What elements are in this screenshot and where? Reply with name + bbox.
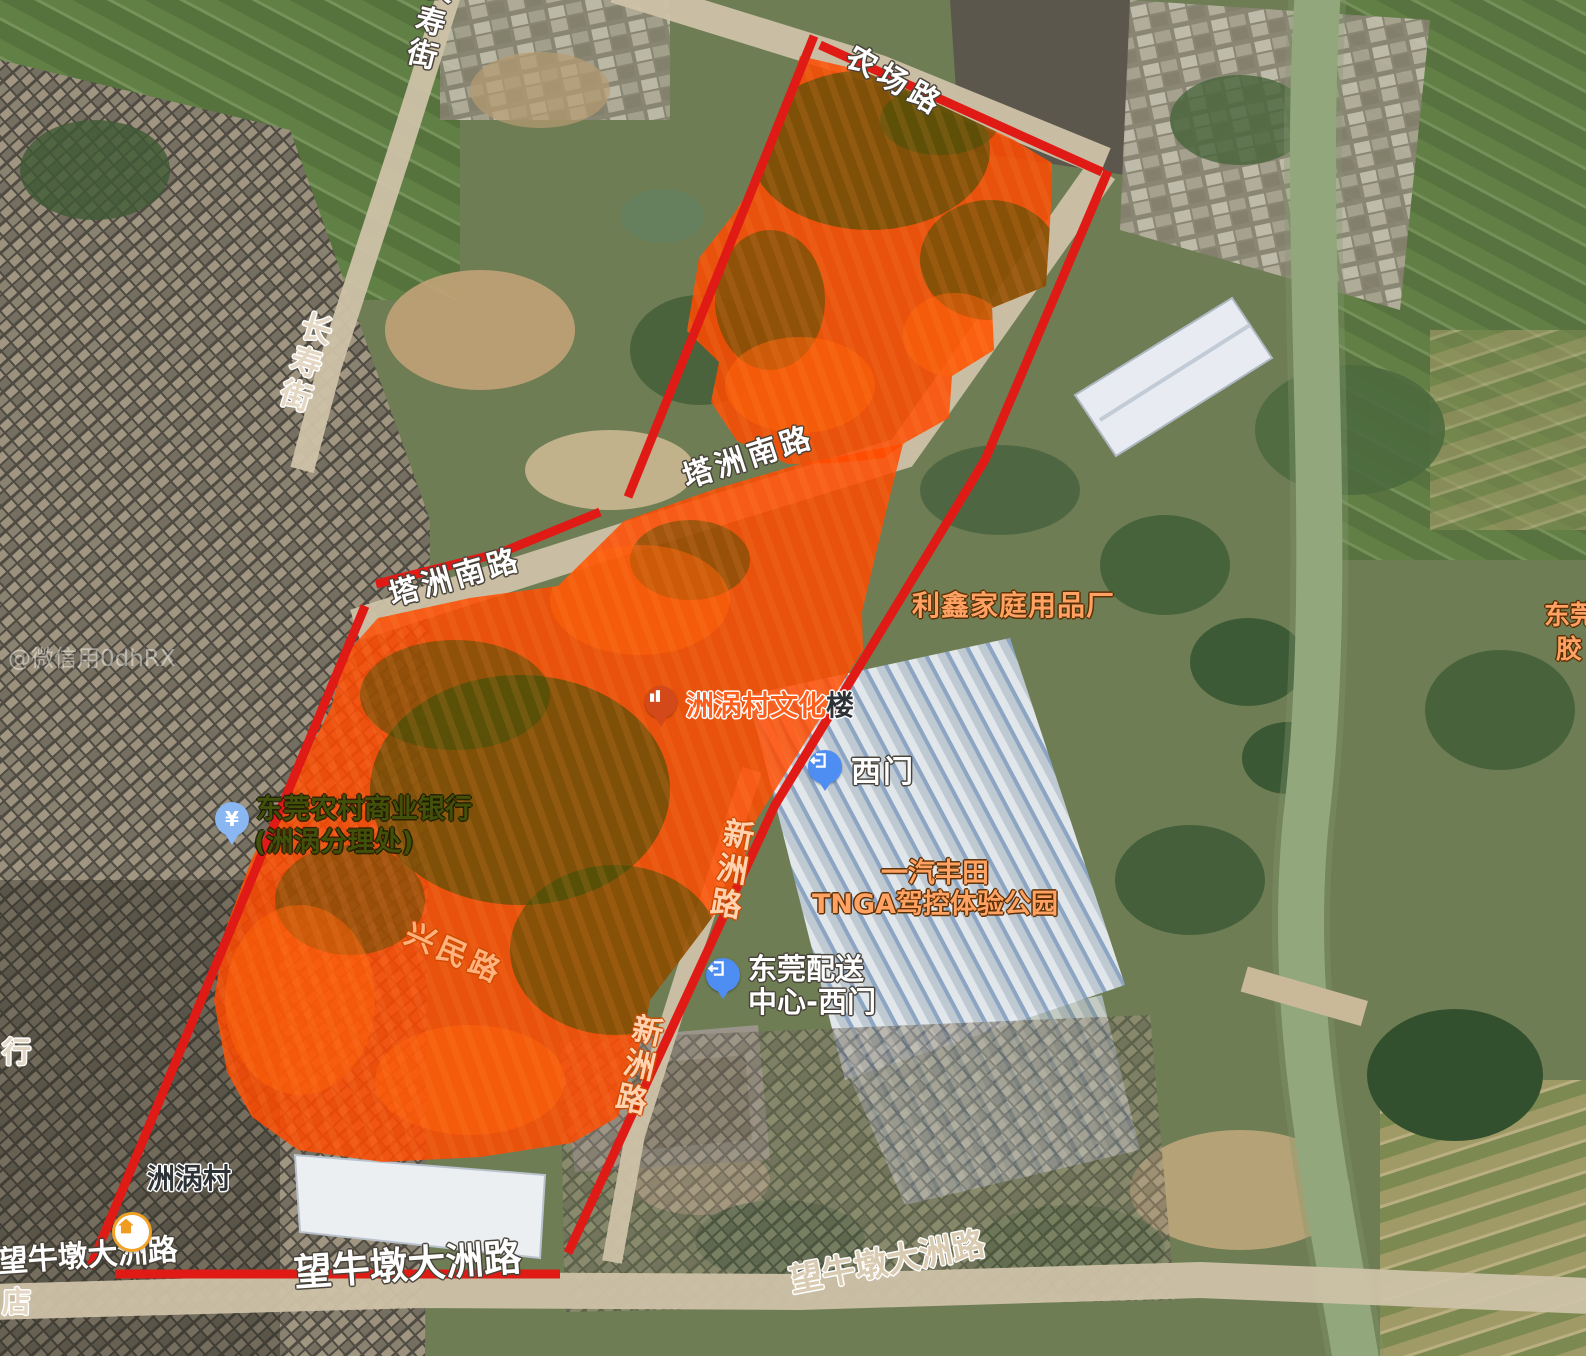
gate-icon xyxy=(706,958,727,979)
pin-tail xyxy=(654,716,668,734)
culture-hall-marker[interactable] xyxy=(645,686,677,734)
west-gate-marker[interactable] xyxy=(808,750,842,797)
home-marker[interactable] xyxy=(112,1212,152,1252)
pin-tail xyxy=(225,834,239,852)
bank-marker[interactable]: ¥ xyxy=(215,802,249,852)
pin-tail xyxy=(819,782,831,797)
yuan-icon: ¥ xyxy=(225,807,239,831)
building-icon xyxy=(645,686,665,706)
delivery-gate-marker[interactable] xyxy=(706,958,740,1005)
house-icon xyxy=(115,1215,137,1237)
satellite-canvas[interactable] xyxy=(0,0,1586,1356)
gate-icon xyxy=(808,750,829,771)
pin-tail xyxy=(717,990,729,1005)
map-viewport[interactable]: 长寿街 农场路 长寿街 塔洲南路 塔洲南路 兴民路 新洲路 新洲路 望牛墩大洲路… xyxy=(0,0,1586,1356)
